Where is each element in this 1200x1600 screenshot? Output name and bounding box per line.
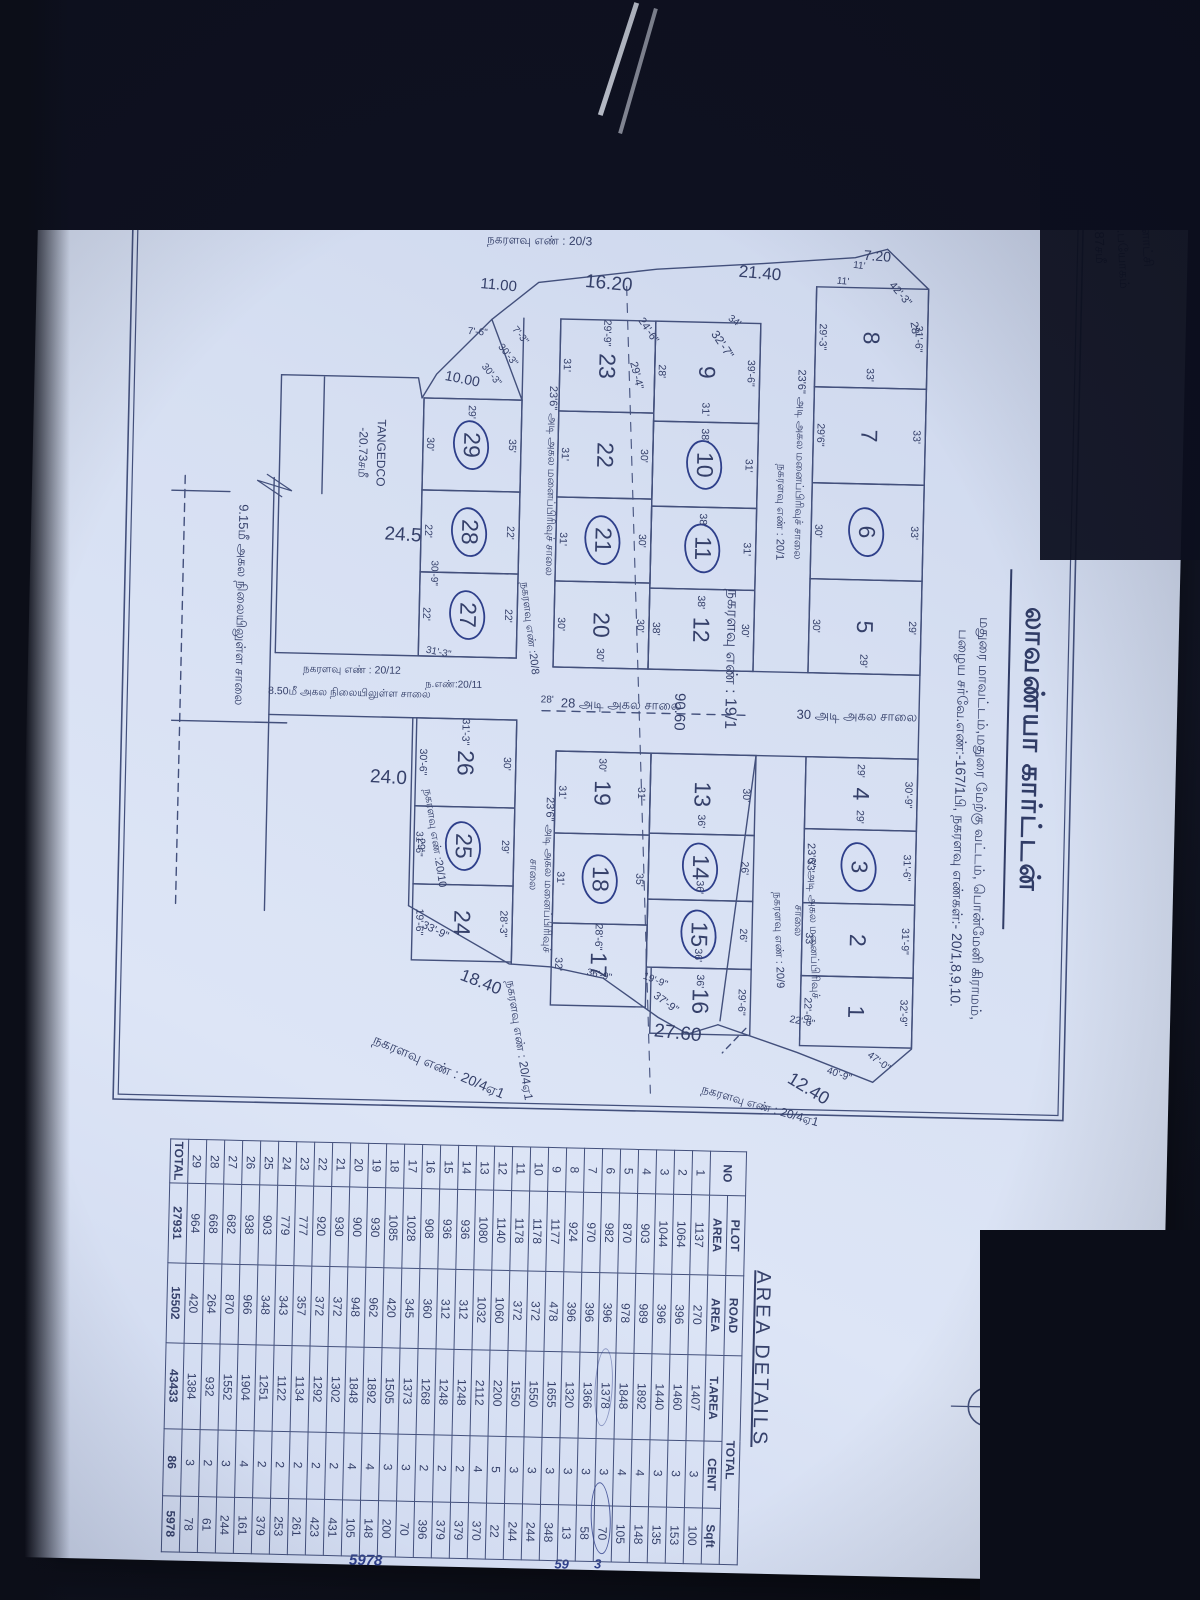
crease-dashed-line: [608, 286, 668, 1093]
col-group-header-road: ROAD: [724, 1275, 744, 1355]
table-cell: 86: [163, 1429, 183, 1496]
plan-label: 11.00: [480, 276, 518, 295]
plot-23-dimension: 29'-9": [601, 320, 614, 347]
table-cell: 3: [541, 1437, 561, 1504]
plot-19-number: 19: [589, 780, 616, 806]
table-cell: 396: [413, 1501, 432, 1558]
plot-13-dimension: 30': [740, 788, 752, 802]
table-cell: 2: [253, 1431, 273, 1498]
plan-label: ந.எண்:20/11: [425, 680, 482, 692]
table-cell: 3: [594, 1438, 614, 1505]
plot-20-dimension: 30': [555, 617, 567, 631]
table-cell: 22: [314, 1142, 333, 1186]
table-cell: 153: [665, 1507, 684, 1564]
plot-8-dimension: 33': [864, 368, 876, 382]
plot-16-dimension: 29'-6": [735, 989, 748, 1016]
plot-24-number: 24: [449, 910, 476, 936]
plot-26-number: 26: [453, 750, 480, 776]
table-cell: 1460: [668, 1354, 688, 1440]
table-cell: 270: [688, 1275, 708, 1355]
table-cell: 244: [503, 1503, 522, 1560]
table-cell: 930: [366, 1187, 386, 1267]
plot-28-dimension: 22': [422, 524, 434, 538]
table-cell: 5: [620, 1149, 639, 1193]
table-cell: 870: [618, 1193, 638, 1273]
plan-label: சாலை: [526, 859, 538, 891]
table-cell: 1140: [492, 1190, 512, 1270]
table-cell: 1550: [524, 1351, 544, 1437]
table-cell: 15502: [166, 1263, 186, 1343]
table-cell: 2200: [488, 1350, 508, 1436]
table-cell: 1655: [542, 1351, 562, 1437]
plot-18-number: 18: [587, 866, 614, 892]
table-cell: 682: [222, 1184, 242, 1264]
table-cell: 264: [202, 1264, 222, 1344]
table-cell: 105: [341, 1500, 360, 1557]
table-cell: 1060: [490, 1270, 510, 1350]
table-cell: 312: [454, 1269, 474, 1349]
table-cell: 1137: [690, 1195, 710, 1275]
table-cell: 379: [449, 1502, 468, 1559]
table-cell: 7: [584, 1148, 603, 1192]
table-cell: 21: [332, 1143, 351, 1187]
table-cell: 78: [179, 1496, 198, 1553]
table-cell: 423: [305, 1499, 324, 1556]
table-cell: 1032: [472, 1270, 492, 1350]
table-cell: 1892: [632, 1353, 652, 1439]
plan-label: 21.40: [738, 263, 782, 285]
table-cell: 396: [652, 1274, 672, 1354]
plot-4-number: 4: [848, 787, 874, 801]
plot-12-dimension: 38': [695, 595, 707, 609]
plot-19-dimension: 30': [596, 758, 608, 772]
table-cell: 978: [616, 1273, 636, 1353]
plot-17-dimension: 32': [552, 957, 564, 971]
plot-20-number: 20: [588, 612, 615, 638]
plot-11-dimension: 38': [697, 513, 709, 527]
table-cell: 3: [648, 1440, 668, 1507]
table-cell: 1550: [506, 1350, 526, 1436]
table-cell: 1366: [578, 1352, 598, 1438]
table-cell: 13: [476, 1146, 495, 1190]
plot-29-number: 29: [459, 432, 486, 458]
plan-label: 30'-9": [428, 560, 439, 586]
table-cell: 135: [647, 1506, 666, 1563]
table-cell: 23: [296, 1142, 315, 1186]
plot-6-number: 6: [854, 525, 880, 538]
table-cell: 1064: [672, 1194, 692, 1274]
plot-1-number: 1: [843, 1005, 869, 1018]
table-cell: 345: [400, 1268, 420, 1348]
plot-22-dimension: 31': [559, 447, 571, 461]
table-cell: 2: [199, 1429, 219, 1496]
table-cell: 200: [377, 1500, 396, 1557]
plot-6-dimension: 33': [908, 526, 920, 540]
plot-25-number: 25: [451, 833, 478, 859]
col-header-no: NO: [710, 1151, 747, 1196]
plan-label: 90.60: [671, 693, 688, 731]
table-cell: 903: [258, 1185, 278, 1265]
table-cell: 27: [224, 1140, 243, 1184]
plot-15-number: 15: [686, 921, 713, 947]
col-group-header-plot: PLOT: [726, 1195, 746, 1275]
plot-9-dimension: 39'-6": [744, 360, 757, 387]
table-cell: 379: [431, 1502, 450, 1559]
table-cell: 29: [188, 1139, 207, 1183]
plot-10-number: 10: [692, 452, 719, 478]
table-cell: 1505: [380, 1348, 400, 1434]
table-cell: 3: [379, 1433, 399, 1500]
plot-26-dimension: 30'-6": [417, 748, 430, 775]
plot-14-number: 14: [688, 854, 715, 880]
table-cell: 3: [217, 1430, 237, 1497]
table-cell: 16: [422, 1145, 441, 1189]
plot-22-number: 22: [592, 442, 619, 468]
plot-2-number: 2: [845, 934, 871, 947]
table-cell: 61: [197, 1496, 216, 1553]
table-cell: 1320: [560, 1352, 580, 1438]
plot-13-dimension: 36': [695, 814, 707, 828]
corner-note-line3: -22.87சமீ: [1091, 209, 1107, 264]
table-cell: 777: [294, 1186, 314, 1266]
table-cell: 372: [526, 1271, 546, 1351]
plot-29-dimension: 30': [424, 437, 436, 451]
table-cell: 966: [238, 1264, 258, 1344]
table-cell: 1178: [528, 1191, 548, 1271]
table-cell: 2: [415, 1434, 435, 1501]
plan-label: நகரளவு எண் : 20/12: [303, 664, 401, 677]
table-cell: 372: [310, 1266, 330, 1346]
table-cell: 58: [575, 1505, 594, 1562]
table-cell: 989: [634, 1273, 654, 1353]
plot-28-dimension: 22': [504, 526, 516, 540]
plan-label: நகரளவு எண் : 20/1: [773, 464, 787, 561]
plot-2-dimension: 31'-9": [899, 928, 912, 955]
plot-6-dimension: 30': [812, 524, 824, 538]
plan-label: 16.20: [584, 272, 633, 296]
table-cell: 396: [580, 1272, 600, 1352]
plot-7-number: 7: [856, 429, 882, 442]
table-cell: 3: [559, 1438, 579, 1505]
table-cell: 253: [269, 1498, 288, 1555]
table-cell: 938: [240, 1184, 260, 1264]
plan-label: 30 அடி அகல சாலை: [796, 708, 917, 724]
table-cell: 970: [582, 1192, 602, 1272]
plot-25-dimension: 29': [499, 840, 511, 854]
plot-20-dimension: 30': [594, 648, 606, 662]
table-cell: 8: [566, 1148, 585, 1192]
table-cell: 2: [325, 1432, 345, 1499]
table-cell: 372: [508, 1270, 528, 1350]
table-cell: 1044: [654, 1194, 674, 1274]
table-cell: 4: [630, 1439, 650, 1506]
table-cell: 2112: [470, 1350, 490, 1436]
table-cell: 9: [548, 1147, 567, 1191]
table-cell: 20: [350, 1143, 369, 1187]
table-body: 1113727014073100210643961460315331044396…: [161, 1139, 710, 1564]
plot-29-dimension: 35': [506, 439, 518, 453]
table-cell: 920: [312, 1186, 332, 1266]
table-cell: 4: [612, 1439, 632, 1506]
table-cell: 924: [564, 1192, 584, 1272]
plot-27-dimension: 22': [420, 607, 432, 621]
table-cell: 1028: [402, 1188, 422, 1268]
table-cell: 870: [220, 1264, 240, 1344]
table-cell: 11: [512, 1147, 531, 1191]
plot-23-dimension: 31': [561, 358, 573, 372]
table-cell: 24: [278, 1141, 297, 1185]
plot-4-dimension: 29': [854, 810, 866, 824]
plan-label: 28 அடி அகல சாலை: [561, 696, 682, 712]
plot-11-number: 11: [690, 536, 717, 560]
table-cell: 1384: [182, 1343, 202, 1429]
plot-parcels: 831'-6"29'-3"33'733'29'6"633'30'529'30'2…: [410, 278, 929, 1048]
table-cell: 5978: [161, 1495, 180, 1552]
plan-label: 11': [836, 276, 849, 288]
table-cell: 3: [181, 1429, 201, 1496]
table-cell: 2: [451, 1435, 471, 1502]
table-cell: 1292: [308, 1346, 328, 1432]
plan-label: நகரளவு எண் : 19/1: [720, 589, 740, 730]
table-cell: 903: [636, 1193, 656, 1273]
table-cell: 932: [200, 1344, 220, 1430]
plot-21-dimension: 31': [557, 532, 569, 546]
plot-12-number: 12: [688, 617, 715, 643]
plot-16-number: 16: [687, 988, 714, 1014]
table-cell: 28: [206, 1140, 225, 1184]
table-cell: 27931: [168, 1183, 188, 1263]
table-cell: 1248: [434, 1349, 454, 1435]
plot-28-number: 28: [457, 519, 484, 545]
table-cell: 930: [330, 1186, 350, 1266]
table-cell: 244: [521, 1504, 540, 1561]
survey-document-sheet: 831'-6"29'-3"33'733'29'6"633'30'529'30'2…: [8, 17, 1193, 1583]
plot-5-number: 5: [852, 620, 878, 633]
table-cell: 70: [395, 1501, 414, 1558]
table-cell: 148: [629, 1506, 648, 1563]
plot-10-dimension: 31': [742, 459, 754, 473]
plan-label: 28': [541, 695, 554, 706]
plot-3-dimension: 31'-6": [900, 854, 913, 881]
plot-8-dimension: 29'-3": [816, 323, 829, 350]
plot-15-dimension: 36': [692, 948, 704, 962]
table-cell: 4: [235, 1430, 255, 1497]
table-cell: 396: [670, 1274, 690, 1354]
table-cell: 1177: [546, 1191, 566, 1271]
table-cell: 982: [600, 1193, 620, 1273]
plot-5-dimension: 29': [857, 654, 869, 668]
table-cell: 4: [469, 1435, 489, 1502]
table-cell: 3: [577, 1438, 597, 1505]
plot-5-dimension: 30': [810, 619, 822, 633]
table-cell: 3: [505, 1436, 525, 1503]
plan-label: சாலை: [791, 905, 803, 937]
plan-label: TANGEDCO: [374, 419, 388, 486]
road-915-south-edge: [175, 476, 185, 909]
plot-7-dimension: 29'6": [814, 423, 827, 447]
table-cell: 668: [204, 1184, 224, 1264]
plot-3-number: 3: [846, 860, 872, 873]
table-cell: 1407: [686, 1355, 706, 1441]
table-cell: 161: [233, 1497, 252, 1554]
table-cell: 13: [557, 1504, 576, 1561]
plan-label: நகரளவு எண் : 20/9: [771, 892, 785, 989]
plot-20-dimension: 30': [634, 619, 646, 633]
table-cell: 3: [684, 1440, 704, 1507]
plot-29-dimension: 29': [466, 405, 478, 419]
plan-label: 28': [907, 321, 921, 337]
table-cell: 10: [530, 1147, 549, 1191]
table-cell: 372: [328, 1266, 348, 1346]
plan-label: நகரளவு எண் : 20/3: [487, 233, 592, 248]
corner-note-line2: உ.பயோகம்: [1114, 217, 1131, 289]
plan-label: 7.20: [863, 248, 891, 265]
plot-23-number: 23: [594, 353, 621, 379]
plot-26-dimension: 30': [501, 757, 513, 771]
table-cell: 4: [638, 1149, 657, 1193]
table-cell: 2: [674, 1150, 693, 1194]
plot-10-dimension: 38': [699, 428, 711, 442]
table-cell: 343: [274, 1265, 294, 1345]
table-cell: 1848: [614, 1353, 634, 1439]
table-cell: 779: [276, 1185, 296, 1265]
table-cell: 348: [539, 1504, 558, 1561]
table-cell: 2: [307, 1432, 327, 1499]
table-cell: 1904: [236, 1344, 256, 1430]
area-details-table: AREA DETAILS NOPLOTROADTOTALAREAAREAT.AR…: [161, 1138, 777, 1566]
table-cell: 3: [656, 1150, 675, 1194]
table-cell: 148: [359, 1500, 378, 1557]
table-cell: 2: [271, 1431, 291, 1498]
photo-scene: 831'-6"29'-3"33'733'29'6"633'30'529'30'2…: [0, 0, 1200, 1600]
plot-9-dimension: 31': [699, 402, 711, 416]
plan-label: 24.5: [384, 524, 422, 546]
table-cell: 17: [404, 1144, 423, 1188]
table-cell: 420: [382, 1268, 402, 1348]
plot-21-number: 21: [590, 527, 617, 553]
plot-14-dimension: 26': [738, 861, 750, 875]
table-cell: 1085: [384, 1188, 404, 1268]
table-cell: 244: [215, 1497, 234, 1554]
table-cell: 1268: [416, 1348, 436, 1434]
table-cell: 3: [397, 1434, 417, 1501]
col-subheader-sqft: Sqft: [701, 1508, 720, 1565]
plot-18-dimension: 31': [554, 871, 566, 885]
plot-4-dimension: 29': [855, 764, 867, 778]
table-cell: 900: [348, 1187, 368, 1267]
table-cell: 936: [438, 1189, 458, 1269]
plot-12-dimension: 38': [650, 622, 662, 636]
plot-19-dimension: 31': [556, 785, 568, 799]
table-cell: 2: [433, 1435, 453, 1502]
plot-5-dimension: 29': [906, 621, 918, 635]
table-cell: 1440: [650, 1354, 670, 1440]
table-cell: 26: [242, 1140, 261, 1184]
table-cell: 1251: [254, 1345, 274, 1431]
page-title: லாவண்யா கார்ட்டன்: [1002, 569, 1052, 930]
table-cell: 4: [343, 1433, 363, 1500]
table-cell: 14: [458, 1145, 477, 1189]
compass-north-icon: [951, 1372, 1027, 1442]
table-cell: 18: [386, 1144, 405, 1188]
plan-label: 7'-6": [467, 327, 488, 339]
table-cell: 370: [467, 1502, 486, 1559]
table-cell: 312: [436, 1269, 456, 1349]
table-cell: 1122: [272, 1345, 292, 1431]
table-cell: 1248: [452, 1349, 472, 1435]
table-cell: 1302: [326, 1346, 346, 1432]
compass-north-letter: வ: [1027, 1424, 1045, 1441]
plan-label: 31'-6": [412, 831, 423, 857]
table-cell: 43433: [164, 1343, 184, 1429]
plot-17-dimension: 28'-6": [592, 923, 605, 950]
table-cell: 1: [692, 1151, 711, 1195]
col-subheader-cent: CENT: [702, 1441, 722, 1508]
table-cell: 1378: [596, 1352, 616, 1438]
table-cell: 964: [186, 1183, 206, 1263]
table-cell: 19: [368, 1143, 387, 1187]
plot-19-dimension: 31': [635, 787, 647, 801]
plot-1-dimension: 32'-9": [897, 999, 910, 1026]
table-cell: 908: [420, 1188, 440, 1268]
plot-15-dimension: 26': [737, 928, 749, 942]
col-subheader-tarea: T.AREA: [704, 1355, 724, 1441]
row4-right-bottom: [409, 718, 413, 906]
table-cell: 1848: [344, 1347, 364, 1433]
plot-9-dimension: 28': [656, 364, 668, 378]
plot-27-number: 27: [455, 602, 482, 628]
table-cell: 1080: [474, 1190, 494, 1270]
plot-18-dimension: 35': [633, 873, 645, 887]
table-cell: 70: [593, 1505, 612, 1562]
corner-note-line1: உ.ளாட்சி: [1139, 212, 1155, 267]
table-cell: 25: [260, 1141, 279, 1185]
col-subheader-area: AREA: [706, 1275, 726, 1355]
plot-22-dimension: 30': [638, 449, 650, 463]
col-subheader-area: AREA: [708, 1195, 728, 1275]
plot-27-dimension: 22': [502, 609, 514, 623]
plot-24-dimension: 28'-3": [497, 910, 510, 937]
table-cell: 6: [602, 1149, 621, 1193]
table-cell: 2: [289, 1431, 309, 1498]
table-cell: 962: [364, 1267, 384, 1347]
plan-label: -20.73சமீ: [356, 427, 370, 478]
table-cell: 1134: [290, 1346, 310, 1432]
table-cell: 1373: [398, 1348, 418, 1434]
table-cell: 1178: [510, 1190, 530, 1270]
plot-26-dimension: 31'-3": [459, 718, 472, 745]
plot-11-dimension: 31': [741, 542, 753, 556]
table-cell: 348: [256, 1265, 276, 1345]
table-cell: 261: [287, 1498, 306, 1555]
table-cell: 420: [184, 1263, 204, 1343]
tangedco-enclosure: [275, 375, 422, 656]
table-cell: 360: [418, 1268, 438, 1348]
table-cell: 5: [487, 1436, 507, 1503]
table-cell: 431: [323, 1499, 342, 1556]
table-cell: 1552: [218, 1344, 238, 1430]
table-cell: 936: [456, 1189, 476, 1269]
table-cell: 396: [562, 1272, 582, 1352]
table-cell: 3: [523, 1437, 543, 1504]
table-cell: 357: [292, 1266, 312, 1346]
plan-label: 24.0: [369, 767, 407, 789]
table-cell: 105: [611, 1506, 630, 1563]
table-cell: 379: [251, 1497, 270, 1554]
plot-14-dimension: 36': [693, 880, 705, 894]
table-cell: 22: [485, 1503, 504, 1560]
table-cell: 478: [544, 1271, 564, 1351]
